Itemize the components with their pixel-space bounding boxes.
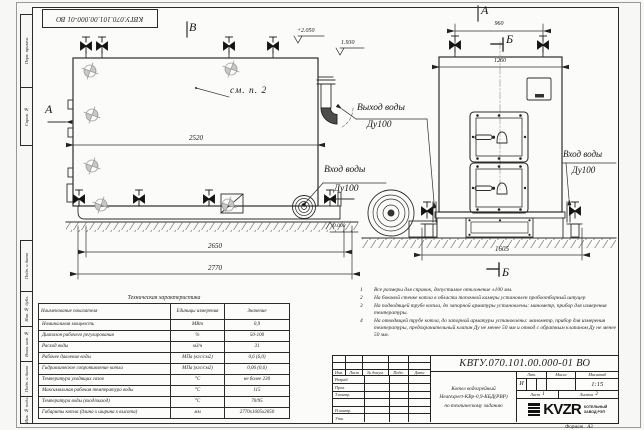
- sheets-value: 2: [595, 391, 598, 397]
- title-block: КВТУ.070.101.00.000-01 ВО Изм. Лист № до…: [332, 355, 619, 424]
- dim-2520: 2520: [171, 135, 221, 142]
- spec-cell: 2770х1605х2050: [224, 408, 289, 418]
- elevation-top: +2.050: [297, 28, 315, 34]
- spec-cell: Температура воды (вход/выход): [39, 397, 170, 407]
- door-handle: [475, 135, 492, 140]
- spec-cell: 0,9: [224, 320, 289, 330]
- valve-icon: [97, 37, 108, 53]
- view-label-a-front: А: [481, 4, 488, 16]
- spec-header-row: Наименование показателя Единицы измерени…: [39, 304, 289, 319]
- spec-cell: 0,06 (0,6): [224, 364, 289, 374]
- outlet-pipe-elbow: [317, 77, 353, 127]
- title-block-signature-area: Изм. Лист № докум. Подп. Дата Разраб. Пр…: [333, 356, 430, 422]
- spec-cell: Расход воды: [39, 342, 170, 352]
- title-block-right-area: Лит. Масса Масштаб И 1:15 Лист 1 Листов …: [516, 372, 619, 422]
- sheets-total-cell: Листов 2: [559, 391, 619, 398]
- title-block-product-name: Котел водогрейный Heatexpert-КВр-0,9-КБД…: [430, 372, 516, 422]
- spec-header-name: Наименование показателя: [39, 304, 170, 319]
- spec-table: Техническая характеристика Наименование …: [38, 295, 290, 419]
- valve-icon: [224, 37, 235, 53]
- dim-2650: 2650: [190, 243, 240, 250]
- company-logo-cell: KVZR КОТЕЛЬНЫЙ ЗАВОД РЭП: [517, 399, 619, 421]
- scale-value: 1:15: [576, 379, 619, 390]
- scale-header: Масштаб: [576, 372, 619, 378]
- company-name-line: ЗАВОД РЭП: [584, 410, 607, 414]
- lit-header: Лит.: [517, 372, 547, 378]
- spec-cell: 50-100: [224, 331, 289, 341]
- spec-cell: Максимальная рабочая температура воды: [39, 386, 170, 396]
- inlet-left-dn-label: Ду100: [334, 185, 359, 195]
- note-text: На боковой стенке котла в области топочн…: [374, 295, 616, 302]
- inlet-right-dn-label: Ду100: [572, 166, 595, 175]
- spec-cell: мм: [170, 408, 224, 418]
- note-number: 1: [360, 287, 374, 294]
- mass-value: [547, 379, 576, 390]
- annotation-leaders-side: [48, 6, 478, 232]
- spec-row: Диапазон рабочего регулирования%50-100: [39, 330, 289, 341]
- col-ndocum: № докум.: [363, 370, 389, 376]
- boiler-base-front: [435, 212, 565, 237]
- sig-row: [333, 399, 430, 407]
- sheets-label: Листов: [580, 392, 594, 397]
- sig-label: Н.контр.: [333, 407, 365, 414]
- product-name-line: Котел водогрейный: [451, 386, 495, 392]
- notes-list: 1Все размеры для справок, допустимое отк…: [360, 287, 616, 340]
- spec-table-grid: Наименование показателя Единицы измерени…: [38, 303, 290, 419]
- valve-icon: [134, 190, 145, 206]
- boiler-door-upper: [470, 112, 528, 162]
- valve-icon: [81, 37, 92, 53]
- note-item: 1Все размеры для справок, допустимое отк…: [360, 287, 616, 294]
- title-block-doc-number: КВТУ.070.101.00.000-01 ВО: [430, 356, 619, 372]
- note-number: 3: [360, 303, 374, 317]
- valve-icon: [204, 190, 215, 206]
- inlet-right-label: Вход воды: [563, 150, 602, 159]
- format-value: А3: [587, 425, 593, 430]
- valve-icon: [422, 202, 433, 218]
- note-item: 3На подводящей трубе котла, до запорной …: [360, 303, 616, 317]
- sig-row: Н.контр.: [333, 407, 430, 415]
- sig-label: Т.контр.: [333, 392, 365, 399]
- section-label-b-bottom: Б: [502, 266, 509, 278]
- spec-cell: 31: [224, 342, 289, 352]
- sig-row: Утв.: [333, 414, 430, 422]
- col-data: Дата: [409, 370, 430, 376]
- spec-cell: °С: [170, 397, 224, 407]
- drawing-sheet: { "sheet": { "stamp_top": "КВТУ.070.101.…: [0, 0, 644, 430]
- elevation-outlet: 1.930: [341, 40, 355, 46]
- outlet-dn-label: Ду100: [367, 121, 392, 131]
- note-text: Все размеры для справок, допустимое откл…: [374, 287, 616, 294]
- inlet-flange-icon: [293, 196, 316, 219]
- boiler-side-view: [67, 37, 354, 219]
- spec-row: Номинальная мощностьМВт0,9: [39, 319, 289, 330]
- revision-row-empty: [333, 363, 430, 370]
- note-item: 4На отводящей трубе котла, до запорной а…: [360, 318, 616, 339]
- door-latch-icon: [497, 183, 507, 194]
- kvzr-logo-text: KVZR: [543, 401, 581, 418]
- format-label-area: Формат А3: [540, 425, 618, 430]
- spec-cell: Диапазон рабочего регулирования: [39, 331, 170, 341]
- lit-value: И: [517, 379, 527, 390]
- spec-row: Температура воды (вход/выход)°С70/95: [39, 396, 289, 407]
- product-name-line: по техническому заданию: [444, 403, 502, 409]
- see-note-annotation: см. п. 2: [230, 87, 267, 97]
- valve-icon: [268, 37, 279, 53]
- sig-row: Т.контр.: [333, 392, 430, 400]
- spec-cell: %: [170, 331, 224, 341]
- sig-row: Разраб.: [333, 376, 430, 384]
- revision-row-empty: [333, 356, 430, 363]
- door-handle: [475, 186, 492, 191]
- spec-row: Расход водым3/ч31: [39, 341, 289, 352]
- ground-line-side: [66, 222, 358, 232]
- sig-label: [333, 399, 365, 406]
- sheet-value: 1: [542, 391, 545, 397]
- spec-row: Температура уходящих газов°Сне более 230: [39, 374, 289, 385]
- boiler-door-lower: [470, 163, 528, 213]
- spec-cell: 0,6 (6,0): [224, 353, 289, 363]
- spec-cell: 70/95: [224, 397, 289, 407]
- spec-cell: Габариты котла (длина х ширина х высота): [39, 408, 170, 418]
- spec-cell: не более 230: [224, 375, 289, 385]
- col-podp: Подп.: [389, 370, 409, 376]
- spec-header-units: Единицы измерения: [170, 304, 224, 319]
- view-label-a-side: А: [45, 103, 52, 115]
- spec-cell: Номинальная мощность: [39, 320, 170, 330]
- spec-cell: МПа (кгс/см2): [170, 353, 224, 363]
- dim-2770: 2770: [190, 265, 240, 272]
- outlet-label: Выход воды: [357, 104, 405, 114]
- spec-row: Гидравлическое сопротивление котлаМПа (к…: [39, 363, 289, 374]
- col-izm: Изм.: [333, 370, 346, 376]
- spec-row: Габариты котла (длина х ширина х высота)…: [39, 407, 289, 418]
- sig-label: Утв.: [333, 414, 365, 422]
- boiler-front-view: [368, 36, 582, 237]
- valve-icon: [74, 190, 85, 206]
- elevation-ground: 0.000: [333, 224, 345, 230]
- note-number: 4: [360, 318, 374, 339]
- dim-1605: 1605: [477, 246, 527, 253]
- spec-header-value: Значение: [224, 304, 289, 319]
- inlet-left-label: Вход воды: [324, 166, 365, 176]
- spec-cell: Температура уходящих газов: [39, 375, 170, 385]
- note-text: На подводящей трубе котла, до запорной а…: [374, 303, 616, 317]
- note-text: На отводящей трубе котла, до запорной ар…: [374, 318, 616, 339]
- spec-cell: МВт: [170, 320, 224, 330]
- section-label-b-top: Б: [506, 33, 513, 45]
- col-list: Лист: [346, 370, 363, 376]
- door-latch-icon: [497, 132, 507, 143]
- spec-cell: 115: [224, 386, 289, 396]
- sig-label: Разраб.: [333, 376, 365, 383]
- spec-cell: °С: [170, 386, 224, 396]
- note-number: 2: [360, 295, 374, 302]
- sig-row: Пров.: [333, 384, 430, 392]
- dimensions-side-view: [74, 145, 352, 279]
- spec-cell: °С: [170, 375, 224, 385]
- mass-header: Масса: [547, 372, 576, 378]
- spec-row: Максимальная рабочая температура воды°С1…: [39, 385, 289, 396]
- valve-icon: [570, 202, 581, 218]
- sheet-number-cell: Лист 1: [517, 391, 559, 398]
- product-name-line: Heatexpert-КВр-0,9-КБД(РВР): [439, 394, 507, 400]
- control-panel: [527, 78, 551, 100]
- sheet-label: Лист: [530, 392, 540, 397]
- company-name: КОТЕЛЬНЫЙ ЗАВОД РЭП: [584, 405, 607, 414]
- note-item: 2На боковой стенке котла в области топоч…: [360, 295, 616, 302]
- kvzr-logo-icon: [528, 403, 540, 416]
- spec-cell: МПа (кгс/см2): [170, 364, 224, 374]
- sig-label: Пров.: [333, 384, 365, 391]
- revision-header-row: Изм. Лист № докум. Подп. Дата: [333, 370, 430, 377]
- dim-1260: 1260: [475, 58, 525, 64]
- top-valves-side: [81, 37, 279, 58]
- spec-cell: Рабочее давление воды: [39, 353, 170, 363]
- spec-table-title: Техническая характеристика: [38, 295, 290, 301]
- spec-cell: м3/ч: [170, 342, 224, 352]
- dim-960: 960: [474, 21, 524, 27]
- format-label: Формат: [565, 425, 583, 430]
- view-label-b: В: [189, 21, 196, 33]
- spec-cell: Гидравлическое сопротивление котла: [39, 364, 170, 374]
- spec-row: Рабочее давление водыМПа (кгс/см2)0,6 (6…: [39, 352, 289, 363]
